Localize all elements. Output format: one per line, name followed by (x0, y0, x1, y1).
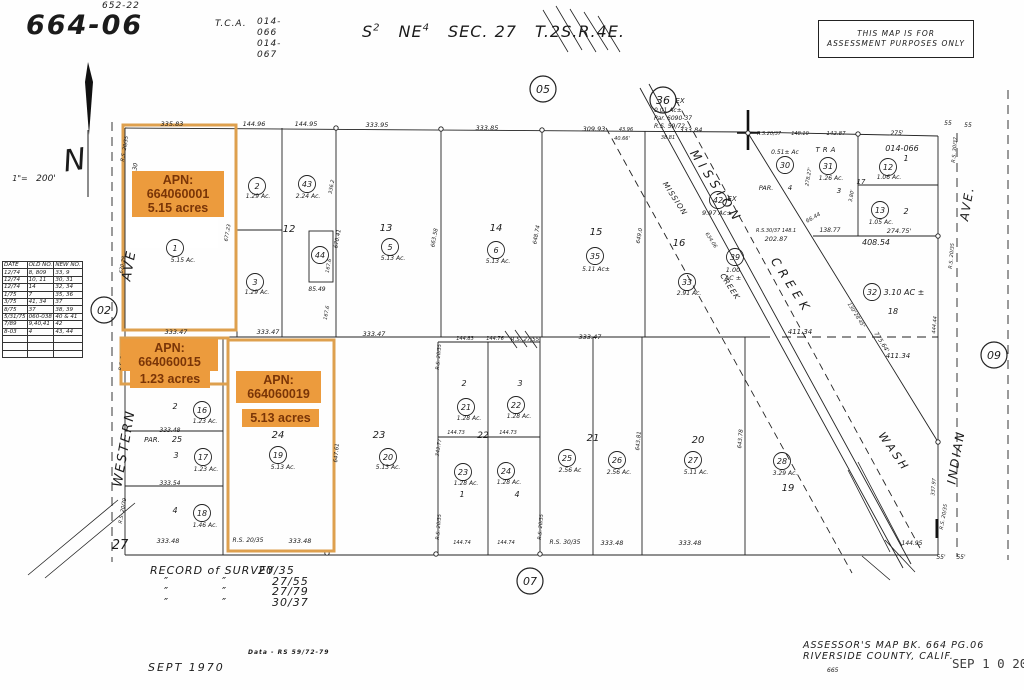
map-label: 014-066 (885, 144, 918, 153)
map-label: 130°28'45" (846, 302, 866, 329)
parcel-circle-number: 27 (688, 456, 699, 465)
map-label: 17 (857, 178, 866, 186)
map-label: 144.95 (902, 540, 923, 547)
assessor-plat-map-page: N1"=200'335.83144.96144.95333.95333.8530… (0, 0, 1024, 690)
map-label: R.S. 30/37 (951, 136, 959, 163)
section-title: S2NE4SEC. 27T.2S.R.4E. (362, 22, 625, 41)
parcel-circle-number: 18 (197, 509, 207, 518)
apn-number: 664060015 (121, 355, 218, 369)
corner-dots (325, 126, 940, 556)
map-label: 2 (461, 379, 466, 388)
map-label: 663.58 (430, 227, 439, 247)
parcel-circle-number: 6 (493, 246, 498, 255)
legend-cell: 3/75 (3, 298, 28, 305)
page-reference-number: 02 (97, 304, 111, 317)
legend-cell: 33, 9 (54, 269, 82, 276)
legend-cell (54, 343, 82, 350)
ditto-mark: ″ (222, 598, 272, 609)
map-label: 30 (131, 162, 139, 171)
map-label: 408.54 (862, 238, 890, 247)
map-label: INDIAN (944, 429, 967, 485)
assessment-disclaimer-box: THIS MAP IS FOR ASSESSMENT PURPOSES ONLY (818, 20, 974, 58)
map-label: R.S. 20/35 (120, 136, 130, 162)
section-sup: 4 (423, 23, 430, 34)
ditto-mark: ″ (150, 598, 222, 609)
legend-cell: 32, 34 (54, 284, 82, 291)
page-title: 664-06 (26, 10, 143, 41)
section-part: NE (399, 22, 423, 41)
map-label: 20 (692, 435, 705, 446)
parcel-circle-number: 32 (867, 288, 877, 297)
cross-reference-number: 652-22 (102, 1, 140, 11)
parcel-circle-number: 5 (387, 243, 392, 252)
map-label: R.S. 20/79 (118, 498, 128, 524)
map-label: 138.77 (820, 227, 841, 234)
map-label: 144.74 (497, 540, 515, 546)
map-label: 333.48 (160, 427, 181, 434)
map-label: 0.01 Ac± (654, 107, 682, 114)
map-label: Par. 6090-37 (654, 115, 692, 122)
map-label: 38.81 (661, 135, 675, 141)
legend-cell: 7 (27, 291, 54, 298)
legend-column-header: DATE (3, 262, 28, 269)
north-arrow-icon (85, 62, 93, 197)
map-label: 3.80' (848, 189, 856, 202)
map-label: EX (675, 97, 684, 105)
map-label: 4 (514, 490, 519, 499)
map-label: 12 (283, 224, 296, 235)
map-label: 648.74 (532, 224, 541, 244)
map-label: 1.05 Ac. (869, 219, 894, 226)
legend-row (3, 343, 83, 350)
map-label: CREEK (768, 255, 815, 317)
map-label: 24 (272, 430, 285, 441)
parcel-circle-number: 21 (461, 403, 471, 412)
map-label: R.S.20/37 (757, 131, 782, 137)
map-label: 55 (944, 120, 952, 127)
map-label: 22 (477, 431, 489, 441)
section-part: S (362, 22, 373, 41)
ditto-mark: ″ (150, 577, 222, 588)
map-label: R.S. 20/35 (537, 514, 545, 540)
map-label: 4 (172, 506, 177, 515)
legend-cell (3, 335, 28, 342)
map-label: 66.44 (805, 211, 822, 224)
map-label: 144.83 (456, 336, 474, 342)
map-label: MISSION (661, 180, 690, 217)
map-label: 144.95 (295, 120, 318, 128)
map-label: R.S. 20/35 (948, 243, 956, 269)
map-label: 333.47 (257, 328, 281, 336)
renumber-legend-table: DATEOLD NO.NEW NO. 12/748, 80933, 912/74… (2, 261, 83, 358)
legend-cell: 42 (54, 321, 82, 328)
legend-cell (3, 343, 28, 350)
map-label: 1.23 Ac. (194, 466, 219, 473)
legend-cell (54, 350, 82, 357)
map-label: 142.87 (826, 131, 846, 137)
map-label: 1.28 Ac. (497, 479, 522, 486)
legend-row: 1/75735, 36 (3, 291, 83, 298)
title-block: 664-06 652-22 (26, 10, 143, 41)
page-reference-number: 07 (523, 575, 537, 588)
ditto-mark: ″ (222, 587, 272, 598)
map-label: 5.11 Ac± (582, 266, 610, 273)
parcel-circle-number: 19 (273, 451, 283, 460)
apn-acreage: 5.15 acres (132, 201, 224, 215)
map-label: 333.48 (679, 539, 702, 547)
map-label: 23 (373, 430, 386, 441)
data-note: Data - RS 59/72-79 (248, 649, 329, 656)
parcel-circle-number: 2 (254, 182, 259, 191)
map-label: 200' (36, 174, 56, 184)
legend-cell: 7/89 (3, 321, 28, 328)
legend-cell: 30, 31 (54, 276, 82, 283)
tca-value: 014-067 (257, 39, 281, 61)
apn-acreage-664060015: 1.23 acres (130, 370, 210, 388)
map-label: 278.27' (804, 167, 813, 187)
map-label: 43.96 (619, 127, 633, 133)
legend-row: 7/899,40,4142 (3, 321, 83, 328)
assessor-line: ASSESSOR'S MAP BK. 664 PG.06 (803, 640, 984, 651)
ditto-mark: ″ (222, 577, 272, 588)
disclaimer-line: ASSESSMENT PURPOSES ONLY (827, 39, 965, 49)
map-label: 333.47 (579, 333, 603, 341)
tca-values: 014-066 014-067 (257, 17, 281, 61)
parcel-circle-number: 20 (383, 453, 393, 462)
map-label: PAR. (144, 436, 160, 444)
legend-cell (27, 350, 54, 357)
map-label: 333.47 (165, 328, 189, 336)
map-label: 15 (590, 227, 603, 238)
legend-row: 3/7541, 3437 (3, 298, 83, 305)
map-label: 337.97 (930, 477, 938, 496)
apn-label: APN: (121, 341, 218, 355)
legend-row (3, 335, 83, 342)
legend-row: 12/7410, 1130, 31 (3, 276, 83, 283)
map-label: TRA (816, 146, 839, 154)
legend-cell: 12/74 (3, 284, 28, 291)
parcel-circle-number: 35 (590, 252, 600, 261)
map-label: 14 (490, 223, 503, 234)
legend-row (3, 350, 83, 357)
parcel-circle-number: 30 (780, 161, 790, 170)
legend-cell: 10, 11 (27, 276, 54, 283)
map-label: R.S. 20/35 (435, 344, 443, 370)
map-label: 202.87 (765, 235, 789, 243)
legend-cell: 37 (27, 306, 54, 313)
record-of-survey-block: RECORD of SURVEY20/35″″27/55″″27/79″″30/… (150, 566, 309, 608)
map-label: 335.83 (161, 120, 184, 128)
legend-cell: 37 (54, 298, 82, 305)
map-label: R.S.30/37 148.1 (756, 228, 796, 234)
parcel-circle-number: 26 (612, 456, 622, 465)
map-label: 411.34 (886, 352, 911, 360)
map-label: 5.13 Ac. (271, 464, 296, 471)
apn-label: APN: (132, 173, 224, 187)
map-label: 643.78 (737, 429, 745, 449)
map-label: 144.76 (486, 336, 504, 342)
map-label: R.S. 59/72 (654, 123, 685, 130)
map-label: 144.74 (453, 540, 471, 546)
tca-value: 014-066 (257, 17, 281, 39)
map-label: 5.13 Ac. (486, 258, 511, 265)
map-label: 1.23 Ac. (193, 418, 218, 425)
parcel-circle-number: 28 (777, 457, 787, 466)
map-label: 19 (782, 483, 795, 494)
map-label: 1"= (12, 174, 27, 183)
legend-row: 8/753738, 39 (3, 306, 83, 313)
map-label: 167.6 (323, 305, 331, 320)
page-reference-number: 05 (536, 83, 550, 96)
parcel-circle-number: 31 (823, 162, 833, 171)
map-label: 2.56 Ac (559, 467, 582, 474)
legend-cell: 8-03 (3, 328, 28, 335)
legend-column-header: NEW NO. (54, 262, 82, 269)
legend-cell: 4 (27, 328, 54, 335)
apn-acreage: 1.23 acres (130, 372, 210, 386)
apn-number: 664060019 (236, 387, 321, 401)
parcel-circle-number: 23 (458, 468, 468, 477)
legend-cell (27, 343, 54, 350)
map-label: 333.48 (157, 537, 180, 545)
apn-acreage-664060019: 5.13 acres (242, 409, 319, 427)
plate-number: 665 (827, 667, 838, 674)
legend-cell: 41, 34 (27, 298, 54, 305)
map-label: 2.91 Ac. (677, 290, 702, 297)
map-label: 4 (788, 184, 792, 192)
map-date: SEPT 1970 (148, 661, 225, 674)
parcel-circle-number: 22 (511, 401, 521, 410)
township-range: T.2S.R.4E. (535, 22, 625, 41)
map-label: 333.85 (476, 124, 499, 132)
map-label: 647.61 (333, 443, 341, 463)
map-label: 677.23 (224, 224, 233, 242)
parcel-circle-number: 42 (713, 196, 723, 205)
disclaimer-line: THIS MAP IS FOR (857, 29, 935, 39)
section-part: SEC. 27 (448, 22, 517, 41)
map-label: R.S. 20/35 (939, 504, 949, 530)
map-label: 3 (517, 379, 522, 388)
parcel-circle-number: 33 (682, 278, 692, 287)
map-label: 2 (903, 207, 908, 216)
map-label: 1 (459, 490, 464, 499)
legend-row: 8-03443, 44 (3, 328, 83, 335)
map-label: 274.75' (887, 227, 912, 235)
map-label: 85.49 (308, 286, 325, 293)
map-label: 275' (890, 130, 903, 137)
legend-cell: 5/31/75 (3, 313, 28, 320)
legend-cell (54, 335, 82, 342)
apn-label: APN: (236, 373, 321, 387)
map-label: 333.48 (289, 537, 312, 545)
legend-cell: 060-038 (27, 313, 54, 320)
map-label: 3.29 Ac. (773, 470, 798, 477)
legend-cell: 8, 809 (27, 269, 54, 276)
map-label: 1.46 Ac. (193, 522, 218, 529)
map-label: EX (727, 195, 736, 203)
map-label: 336.2 (328, 179, 336, 194)
map-label: AC ± (724, 274, 742, 282)
map-label: 55' (956, 554, 966, 561)
map-label: 3 (173, 451, 178, 460)
parcel-circle-number: 17 (198, 453, 209, 462)
legend-row: 12/748, 80933, 9 (3, 269, 83, 276)
mission-creek-lines (606, 84, 938, 573)
received-date-stamp: SEP 1 0 2003 (952, 656, 1024, 671)
map-label: 634.06 (704, 231, 719, 249)
map-label: 1.26 Ac. (819, 175, 844, 182)
map-label: 55 (964, 122, 972, 129)
apn-acreage: 5.13 acres (242, 411, 319, 425)
map-label: 40.66' (614, 136, 630, 142)
map-label: 333.54 (160, 480, 181, 487)
map-label: 1.28 Ac. (454, 480, 479, 487)
map-label: 9.97 Ac± (702, 209, 732, 217)
parcel-circle-number: 44 (315, 251, 325, 260)
legend-cell: 8/75 (3, 306, 28, 313)
map-label: 333.48 (601, 539, 624, 547)
map-label: R.S. 20/35 (435, 514, 443, 540)
apn-badge-664060015: APN: 664060015 (121, 339, 218, 371)
map-label: WASH (876, 430, 913, 474)
legend-cell: 40 & 41 (54, 313, 82, 320)
map-label: N (61, 142, 88, 180)
legend-cell (3, 350, 28, 357)
survey-page: 30/37 (272, 596, 309, 609)
map-label: 309.93 (583, 125, 606, 133)
tca-label: T.C.A. (215, 19, 247, 29)
apn-badge-664060001: APN: 664060001 5.15 acres (132, 171, 224, 217)
map-label: 3 (837, 187, 841, 195)
map-label: 27 (112, 538, 129, 553)
legend-cell: 12/74 (3, 269, 28, 276)
map-label: 1.28 Ac. (457, 415, 482, 422)
parcel-circle-number: 16 (197, 406, 207, 415)
parcel-circle-number: 39 (730, 253, 740, 262)
map-label: 18 (888, 307, 898, 316)
legend-cell: 43, 44 (54, 328, 82, 335)
legend-cell: 35, 36 (54, 291, 82, 298)
legend-cell: 9,40,41 (27, 321, 54, 328)
map-label: R.S. 27/55 (511, 337, 540, 343)
map-label: 1.00 (726, 266, 740, 274)
parcel-circle-number: 12 (883, 163, 893, 172)
map-label: 3.10 AC ± (884, 288, 925, 297)
apn-number: 664060001 (132, 187, 224, 201)
section-sup: 2 (373, 23, 380, 34)
map-label: 2.24 Ac. (296, 193, 321, 200)
map-label: 333.47 (363, 330, 387, 338)
map-label: 144.96 (243, 120, 266, 128)
legend-column-header: OLD NO. (27, 262, 54, 269)
map-label: R.S. 30/35 (550, 539, 581, 546)
map-label: PAR. (759, 184, 774, 192)
map-label: 144.73 (499, 430, 517, 436)
map-label: WESTERN (110, 409, 138, 489)
ditto-mark: ″ (150, 587, 222, 598)
legend-cell (27, 335, 54, 342)
legend-row: 12/741432, 34 (3, 284, 83, 291)
parcel-circle-number: 24 (501, 467, 511, 476)
map-label: 649.0 (636, 227, 645, 244)
map-label: 670.41 (333, 229, 342, 249)
map-label: 16 (673, 238, 686, 249)
parcel-circle-number: 25 (562, 454, 572, 463)
page-reference-number: 36 (656, 94, 670, 107)
map-label: AVE. (957, 185, 977, 223)
map-label: 13 (380, 223, 393, 234)
map-label: 5.15 Ac. (171, 257, 196, 264)
map-label: 1 (903, 154, 908, 163)
page-reference-number: 09 (987, 349, 1001, 362)
legend-cell: 1/75 (3, 291, 28, 298)
map-label: 2 (172, 402, 177, 411)
map-label: 21 (587, 433, 600, 444)
map-label: 25 (172, 435, 182, 444)
map-label: 2.56 Ac. (607, 469, 632, 476)
map-label: 333.95 (366, 121, 389, 129)
map-label: R.S. 20/35 (233, 537, 264, 544)
map-label: 148.10 (791, 131, 809, 137)
legend-row: 5/31/75060-03840 & 41 (3, 313, 83, 320)
survey-reference-line: ″″30/37 (150, 598, 309, 609)
map-label: 1.28 Ac. (507, 413, 532, 420)
map-label: 0.51± Ac (771, 149, 799, 156)
map-label: 144.73 (447, 430, 465, 436)
parcel-circle-number: 3 (252, 278, 257, 287)
legend-cell: 14 (27, 284, 54, 291)
map-label: 343.77 (435, 438, 444, 457)
map-label: 411.34 (788, 328, 813, 336)
legend-cell: 38, 39 (54, 306, 82, 313)
parcel-circle-number: 1 (172, 244, 177, 253)
map-label: 5.13 Ac. (381, 255, 406, 262)
map-label: 55' (936, 554, 946, 561)
parcel-circle-number: 43 (302, 180, 312, 189)
map-label: 5.11 Ac. (684, 469, 709, 476)
apn-badge-664060019: APN: 664060019 (236, 371, 321, 403)
parcel-circle-number: 13 (875, 206, 885, 215)
legend-cell: 12/74 (3, 276, 28, 283)
